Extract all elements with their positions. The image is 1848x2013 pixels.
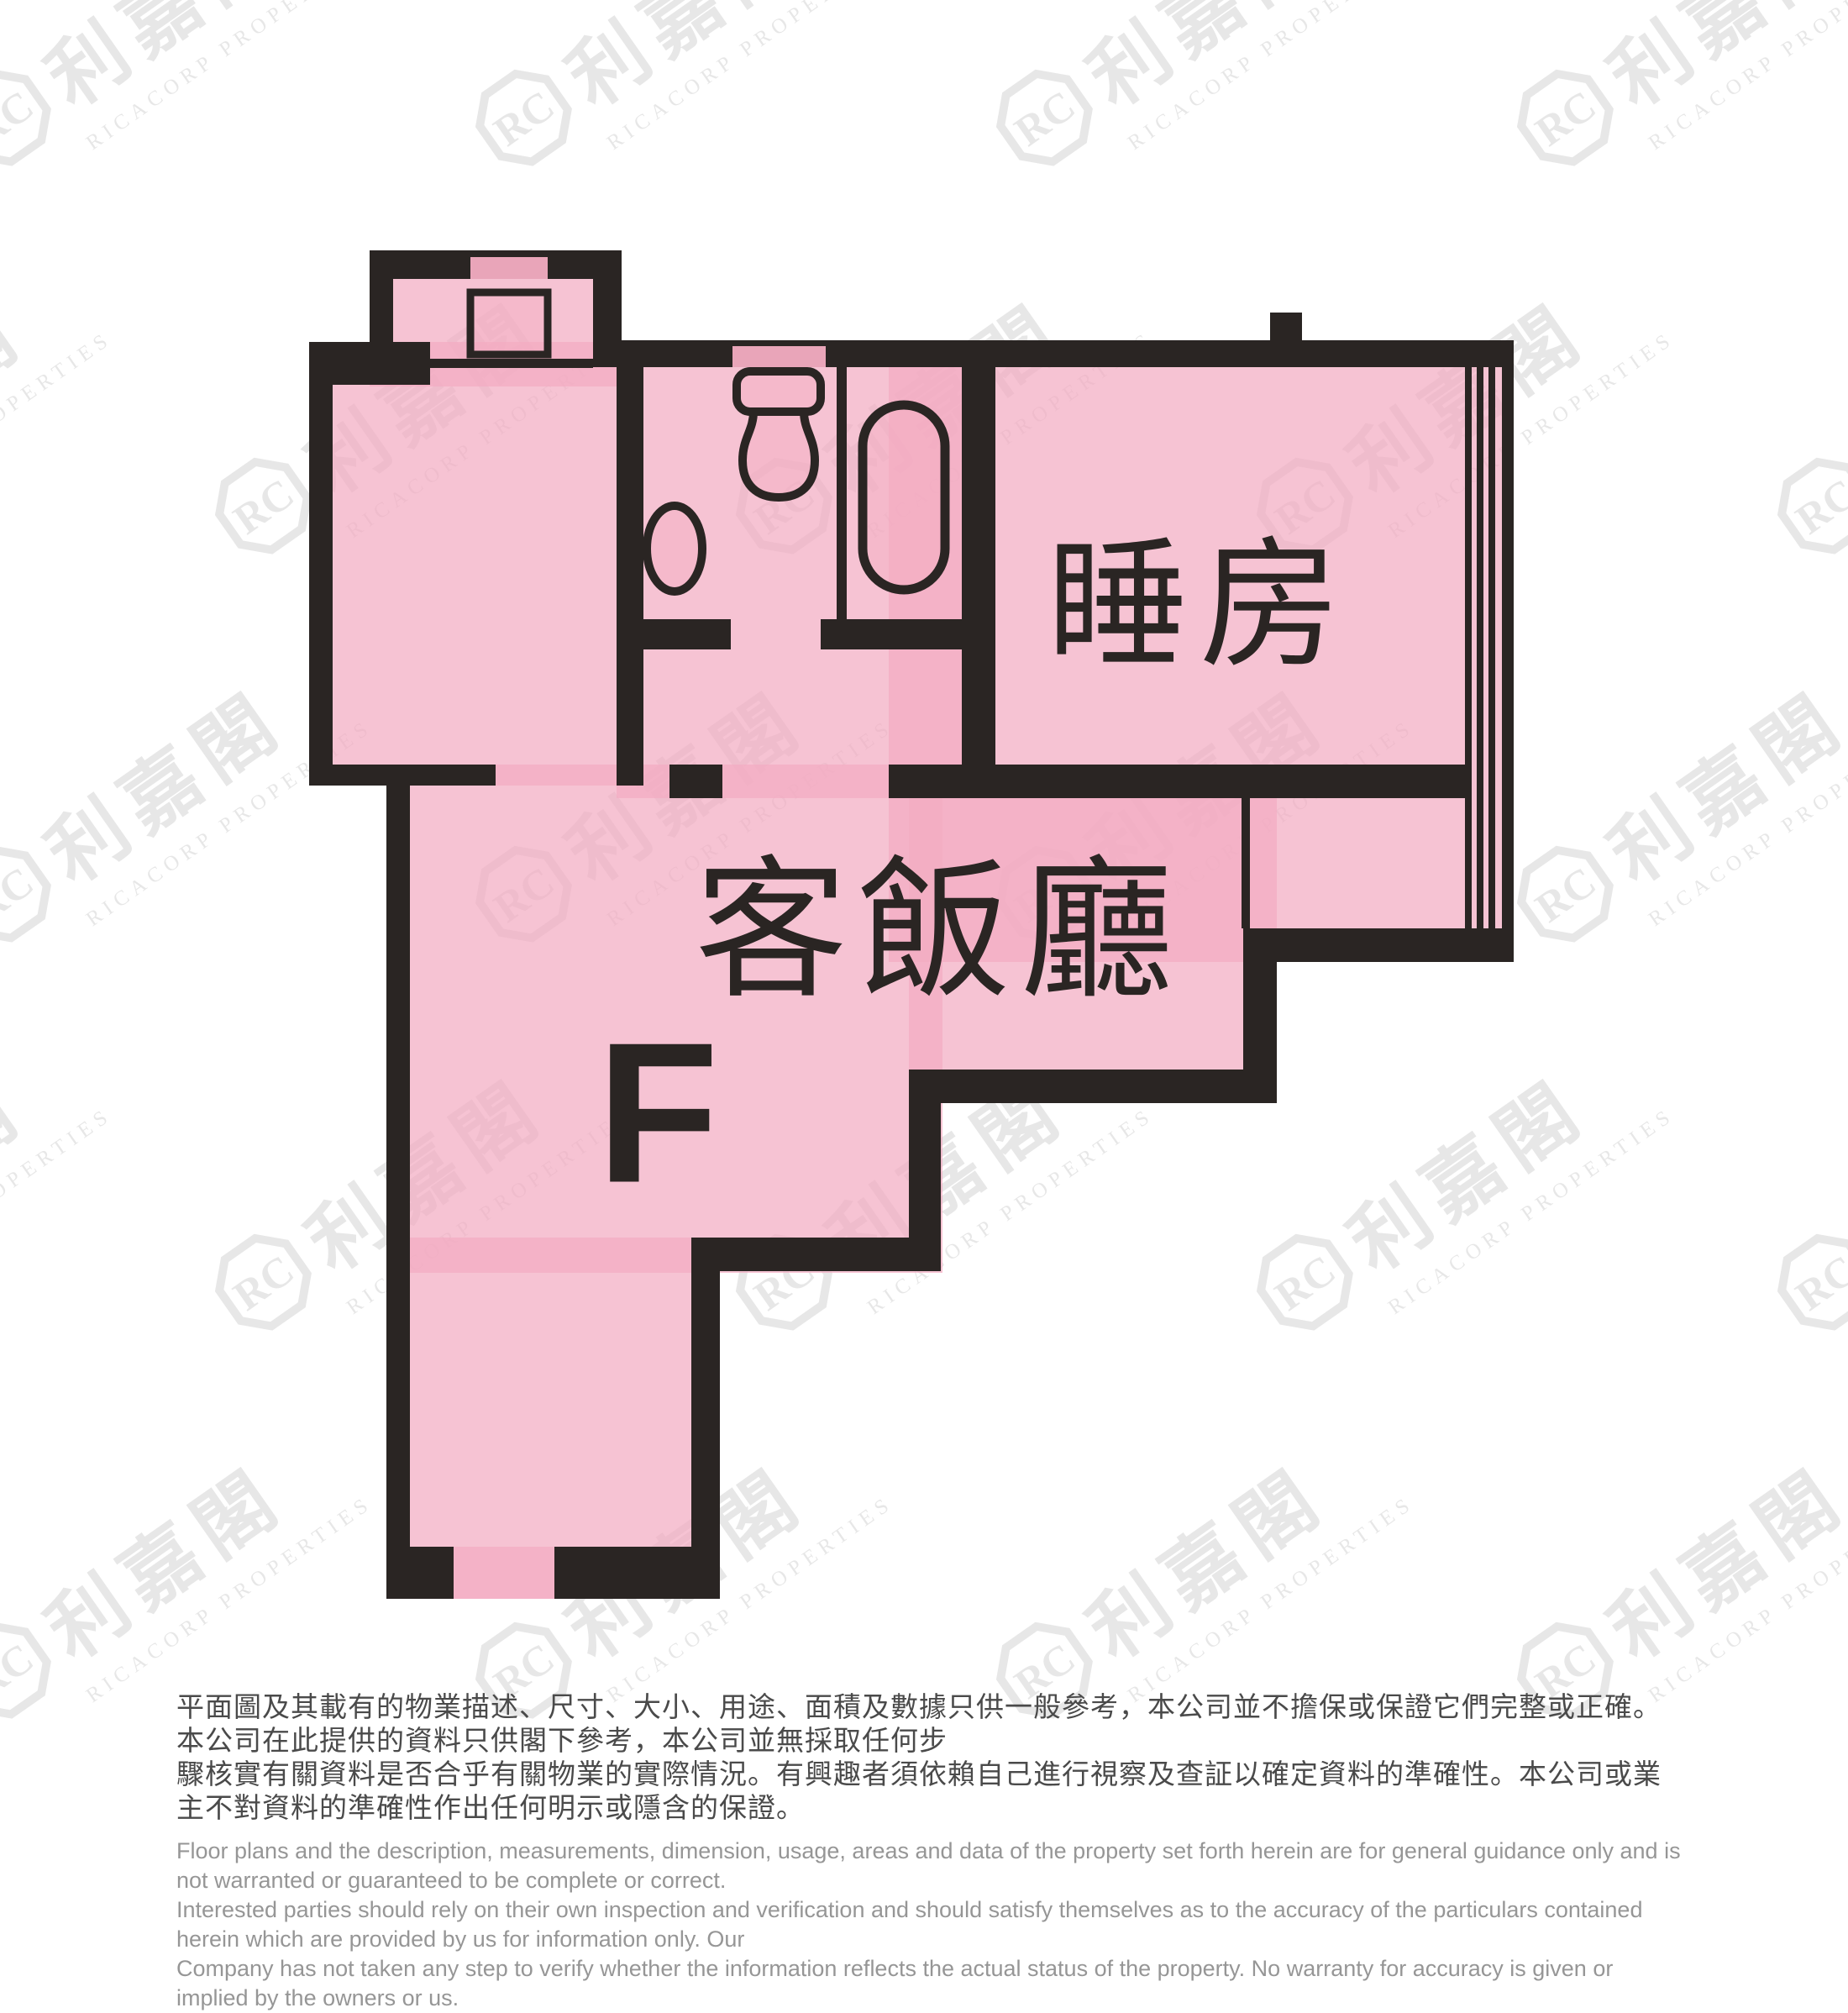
bathtub-icon xyxy=(863,405,945,590)
wall-bottom-right xyxy=(554,1547,720,1599)
wall-alcove-threshold-line xyxy=(430,359,593,368)
disclaimer-block: 平面圖及其載有的物業描述、尺寸、大小、用途、面積及數據只供一般參考，本公司並不擔… xyxy=(176,1690,1688,2013)
disclaimer-en-line-1: Floor plans and the description, measure… xyxy=(176,1837,1688,1895)
wall-step-a-horizontal xyxy=(941,1070,1277,1103)
wall-right-bottom xyxy=(691,1238,720,1599)
entrance-door-opening xyxy=(454,1547,554,1599)
wall-kitchen-left xyxy=(309,342,333,786)
wall-nook-bottom xyxy=(1243,928,1514,962)
disclaimer-zh-line-2: 驟核實有關資料是否合乎有關物業的實際情況。有興趣者須依賴自己進行視察及查証以確定… xyxy=(176,1758,1688,1825)
wall-bath-thin-divider xyxy=(837,367,847,619)
unit-letter-label: F xyxy=(596,999,718,1228)
disclaimer-en-line-2: Interested parties should rely on their … xyxy=(176,1895,1688,1954)
window-glazing-line-1 xyxy=(1465,367,1472,928)
wall-bottom-left xyxy=(386,1547,454,1599)
wall-alcove-right-column xyxy=(593,250,622,367)
wall-living-left xyxy=(386,786,410,1599)
living-dining-label: 客飯廳 xyxy=(695,807,1184,1028)
wall-kitchen-bath-divider xyxy=(617,367,643,786)
fill-living-bottom xyxy=(386,1238,720,1599)
wash-basin-icon xyxy=(647,506,702,591)
wall-bedroom-left xyxy=(962,367,995,798)
fill-kitchen xyxy=(309,342,643,786)
toilet-bowl-icon xyxy=(743,412,815,497)
disclaimer-english-block: Floor plans and the description, measure… xyxy=(176,1837,1688,2013)
wall-window-outer xyxy=(1502,340,1514,962)
wall-kitchen-bottom xyxy=(309,765,496,786)
wall-hall-stub xyxy=(669,765,722,798)
stove-square-icon xyxy=(470,292,548,355)
disclaimer-en-line-3: Company has not taken any step to verify… xyxy=(176,1954,1688,2013)
wall-alcove-left xyxy=(370,250,393,344)
wall-top-step-block xyxy=(1270,313,1302,340)
window-glazing-line-3 xyxy=(1488,367,1495,928)
wall-nook-thin-partition xyxy=(1242,798,1250,928)
bedroom-label: 睡房 xyxy=(1047,491,1352,696)
disclaimer-zh-line-1: 平面圖及其載有的物業描述、尺寸、大小、用途、面積及數據只供一般參考，本公司並不擔… xyxy=(176,1690,1688,1758)
window-glazing-line-2 xyxy=(1477,367,1483,928)
floor-plan-page: { "floor_plan": { "unit_label": "F", "ro… xyxy=(0,0,1848,1848)
wall-step-b-horizontal xyxy=(691,1238,941,1271)
toilet-tank-icon xyxy=(737,371,821,412)
kitchen-window-opening xyxy=(470,257,548,279)
wall-bath-bottom-left xyxy=(617,619,731,649)
wall-bedroom-bottom xyxy=(889,765,1465,798)
bathroom-window-opening xyxy=(732,346,826,367)
